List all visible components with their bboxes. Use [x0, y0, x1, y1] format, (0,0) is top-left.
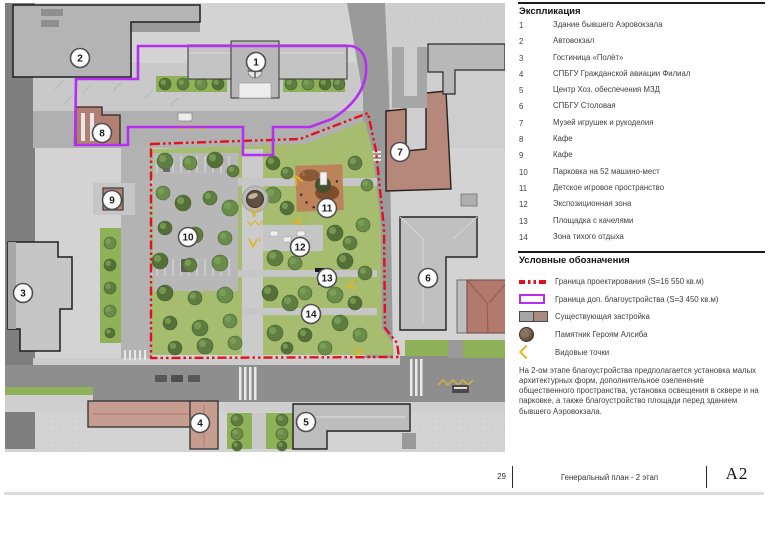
item-number: 14 [519, 233, 553, 242]
item-label: Автовокзал [553, 37, 765, 46]
symbol-item-monument: Памятник Героям Алсиба [519, 326, 765, 344]
svg-text:12: 12 [294, 243, 306, 254]
item-label: Площадка с качелями [553, 217, 765, 226]
explication-item-8: 8Кафе [519, 135, 765, 151]
sheet-page: 21534 1234567891011121314 Экспликация 1З… [0, 0, 768, 534]
map-marker-5: 5 [297, 413, 316, 432]
explication-item-10: 10Парковка на 52 машино-мест [519, 168, 765, 184]
svg-text:9: 9 [109, 196, 115, 207]
explication-item-14: 14Зона тихого отдыха [519, 233, 765, 249]
explication-item-5: 5Центр Хоз. обеспечения МЗД [519, 86, 765, 102]
explication-item-12: 12Экспозиционная зона [519, 200, 765, 216]
map-marker-4: 4 [191, 414, 210, 433]
map-marker-10: 10 [179, 228, 198, 247]
map-marker-3: 3 [14, 284, 33, 303]
symbol-label: Видовые точки [555, 348, 609, 357]
explication-item-6: 6СПБГУ Столовая [519, 102, 765, 118]
svg-text:4: 4 [197, 419, 203, 430]
explication-item-9: 9Кафе [519, 151, 765, 167]
symbol-item-boundary-extra: Граница доп. благоустройства (S=3 450 кв… [519, 291, 765, 309]
item-number: 5 [519, 86, 553, 95]
svg-text:8: 8 [99, 129, 105, 140]
monument-icon [519, 327, 534, 342]
item-number: 6 [519, 102, 553, 111]
svg-text:11: 11 [322, 204, 333, 215]
item-label: Здание бывшего Аэровокзала [553, 21, 765, 30]
svg-text:13: 13 [321, 274, 333, 285]
symbol-label: Граница проектирования (S=16 550 кв.м) [555, 277, 704, 286]
explication-item-1: 1Здание бывшего Аэровокзала [519, 21, 765, 37]
svg-text:3: 3 [303, 215, 306, 221]
svg-text:6: 6 [425, 274, 431, 285]
divider [518, 2, 765, 4]
item-label: Гостиница «Полёт» [553, 54, 765, 63]
site-plan-map: 21534 1234567891011121314 [5, 3, 505, 452]
sheet-title: Генеральный план - 2 этап [513, 473, 706, 482]
item-number: 1 [519, 21, 553, 30]
svg-text:4: 4 [355, 279, 358, 285]
svg-text:1: 1 [258, 237, 261, 243]
item-label: Зона тихого отдыха [553, 233, 765, 242]
item-number: 11 [519, 184, 553, 193]
item-label: Музей игрушек и рукоделия [553, 119, 765, 128]
boundary-extra-icon [519, 294, 545, 304]
item-label: СПБГУ Столовая [553, 102, 765, 111]
map-marker-9: 9 [103, 191, 122, 210]
explication-list: 1Здание бывшего Аэровокзала2Автовокзал3Г… [519, 21, 765, 249]
explication-item-13: 13Площадка с качелями [519, 217, 765, 233]
boundary-design-icon [519, 280, 546, 284]
symbol-label: Существующая застройка [555, 312, 650, 321]
svg-text:10: 10 [182, 233, 194, 244]
svg-text:5: 5 [303, 418, 309, 429]
explication-item-3: 3Гостиница «Полёт» [519, 54, 765, 70]
explication-item-4: 4СПБГУ Гражданской авиации Филиал [519, 70, 765, 86]
item-label: Кафе [553, 135, 765, 144]
explication-title: Экспликация [519, 6, 581, 17]
item-label: СПБГУ Гражданской авиации Филиал [553, 70, 765, 79]
map-marker-8: 8 [93, 124, 112, 143]
footer-divider [706, 466, 707, 488]
item-label: Центр Хоз. обеспечения МЗД [553, 86, 765, 95]
svg-text:1: 1 [253, 58, 259, 69]
item-number: 2 [519, 37, 553, 46]
sheet-code: А2 [715, 464, 759, 484]
symbol-item-viewpoints: Видовые точки [519, 343, 765, 361]
symbol-item-existing: Существующая застройка [519, 308, 765, 326]
stage-note: На 2-ом этапе благоустройства предполага… [519, 366, 761, 417]
map-marker-13: 13 [318, 269, 337, 288]
map-marker-11: 11 [318, 199, 337, 218]
svg-text:14: 14 [305, 310, 317, 321]
map-marker-1: 1 [247, 53, 266, 72]
item-number: 10 [519, 168, 553, 177]
item-number: 12 [519, 200, 553, 209]
map-marker-14: 14 [302, 305, 321, 324]
svg-text:3: 3 [20, 289, 26, 300]
item-label: Кафе [553, 151, 765, 160]
item-label: Экспозиционная зона [553, 200, 765, 209]
map-marker-12: 12 [291, 238, 310, 257]
symbols-title: Условные обозначения [519, 255, 630, 266]
symbol-label: Памятник Героям Алсиба [555, 330, 647, 339]
symbol-label: Граница доп. благоустройства (S=3 450 кв… [555, 295, 719, 304]
monument-alsib [242, 186, 268, 212]
footer-rule [4, 492, 764, 495]
existing-icon [519, 311, 548, 322]
svg-text:2: 2 [259, 206, 262, 212]
explication-item-7: 7Музей игрушек и рукоделия [519, 119, 765, 135]
item-label: Парковка на 52 машино-мест [553, 168, 765, 177]
symbols-list: Граница проектирования (S=16 550 кв.м)Гр… [519, 273, 765, 361]
item-number: 4 [519, 70, 553, 79]
legend-panel: Экспликация 1Здание бывшего Аэровокзала2… [518, 0, 766, 462]
item-number: 7 [519, 119, 553, 128]
divider [518, 251, 765, 253]
building-pink [467, 280, 505, 333]
svg-text:7: 7 [397, 148, 403, 159]
svg-text:5: 5 [302, 172, 305, 178]
item-number: 3 [519, 54, 553, 63]
svg-text:2: 2 [77, 54, 83, 65]
item-number: 13 [519, 217, 553, 226]
explication-item-2: 2Автовокзал [519, 37, 765, 53]
item-label: Детское игровое пространство [553, 184, 765, 193]
map-marker-6: 6 [419, 269, 438, 288]
explication-item-11: 11Детское игровое пространство [519, 184, 765, 200]
map-marker-7: 7 [391, 143, 410, 162]
page-number: 29 [430, 472, 506, 481]
symbol-item-boundary-design: Граница проектирования (S=16 550 кв.м) [519, 273, 765, 291]
map-marker-2: 2 [71, 49, 90, 68]
item-number: 9 [519, 151, 553, 160]
viewpoints-icon [519, 345, 533, 359]
item-number: 8 [519, 135, 553, 144]
west-street [121, 145, 151, 365]
